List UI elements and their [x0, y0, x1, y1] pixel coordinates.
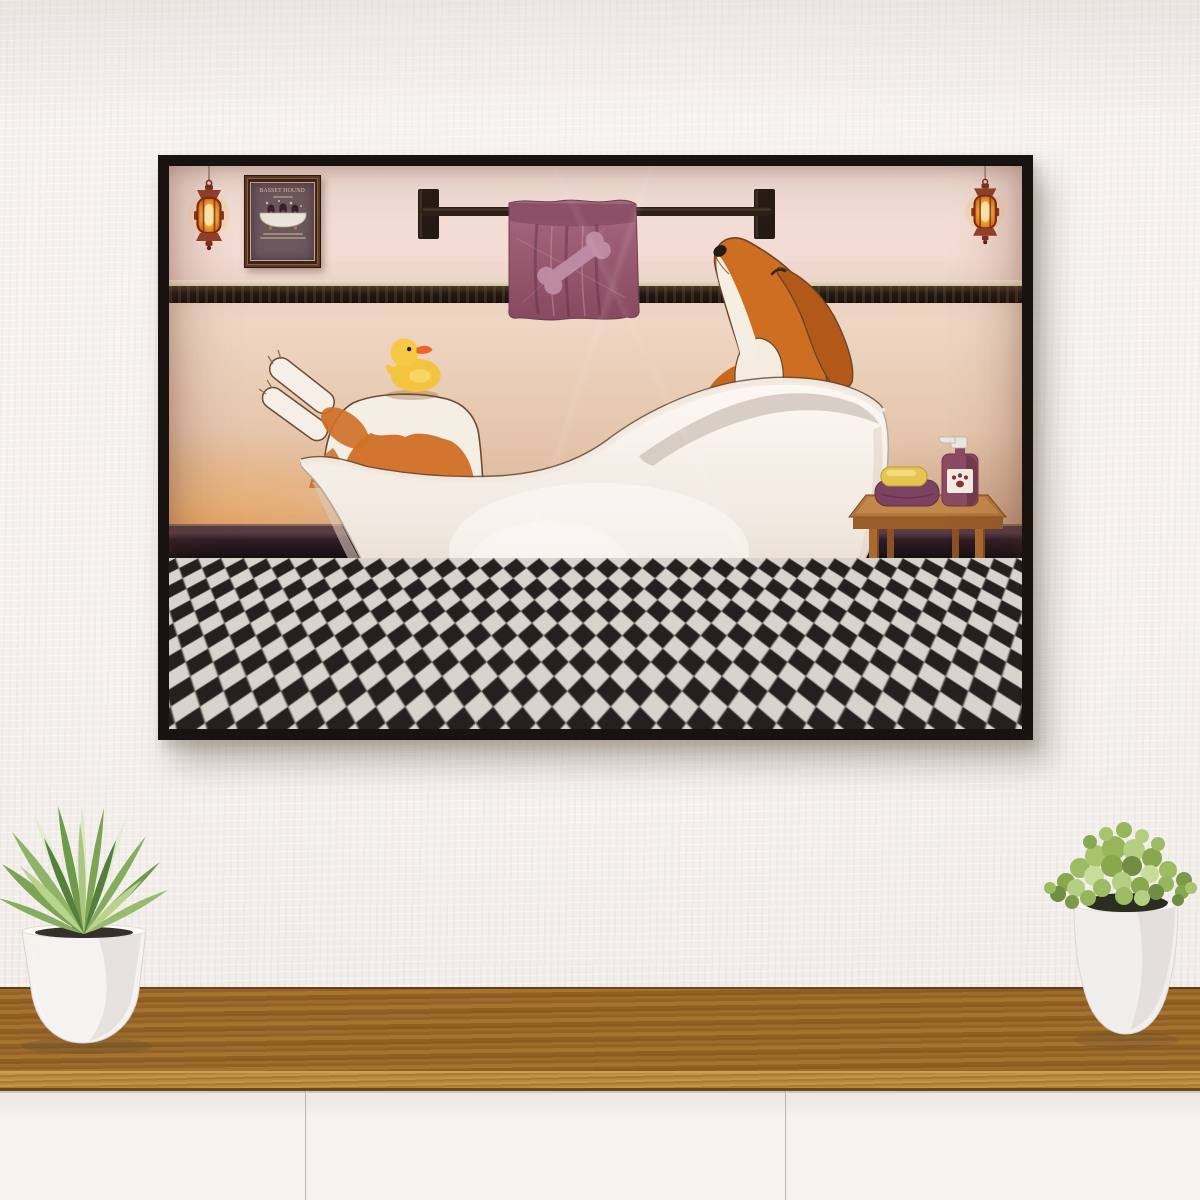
cabinet-seam [785, 1091, 787, 1200]
countertop [0, 987, 1200, 1071]
canvas-vignette [169, 166, 1022, 729]
poster-art: BASSET HOUND [169, 166, 1022, 729]
foliage-left [0, 806, 168, 934]
potted-plant-left [0, 806, 177, 1071]
foliage-right [1044, 822, 1197, 909]
cabinets [0, 1091, 1200, 1200]
framed-poster: BASSET HOUND [158, 155, 1033, 740]
product-photo: BASSET HOUND [0, 0, 1200, 1200]
potted-plant-right [1036, 818, 1200, 1063]
cabinet-seam [305, 1091, 307, 1200]
countertop-edge [0, 1071, 1200, 1091]
